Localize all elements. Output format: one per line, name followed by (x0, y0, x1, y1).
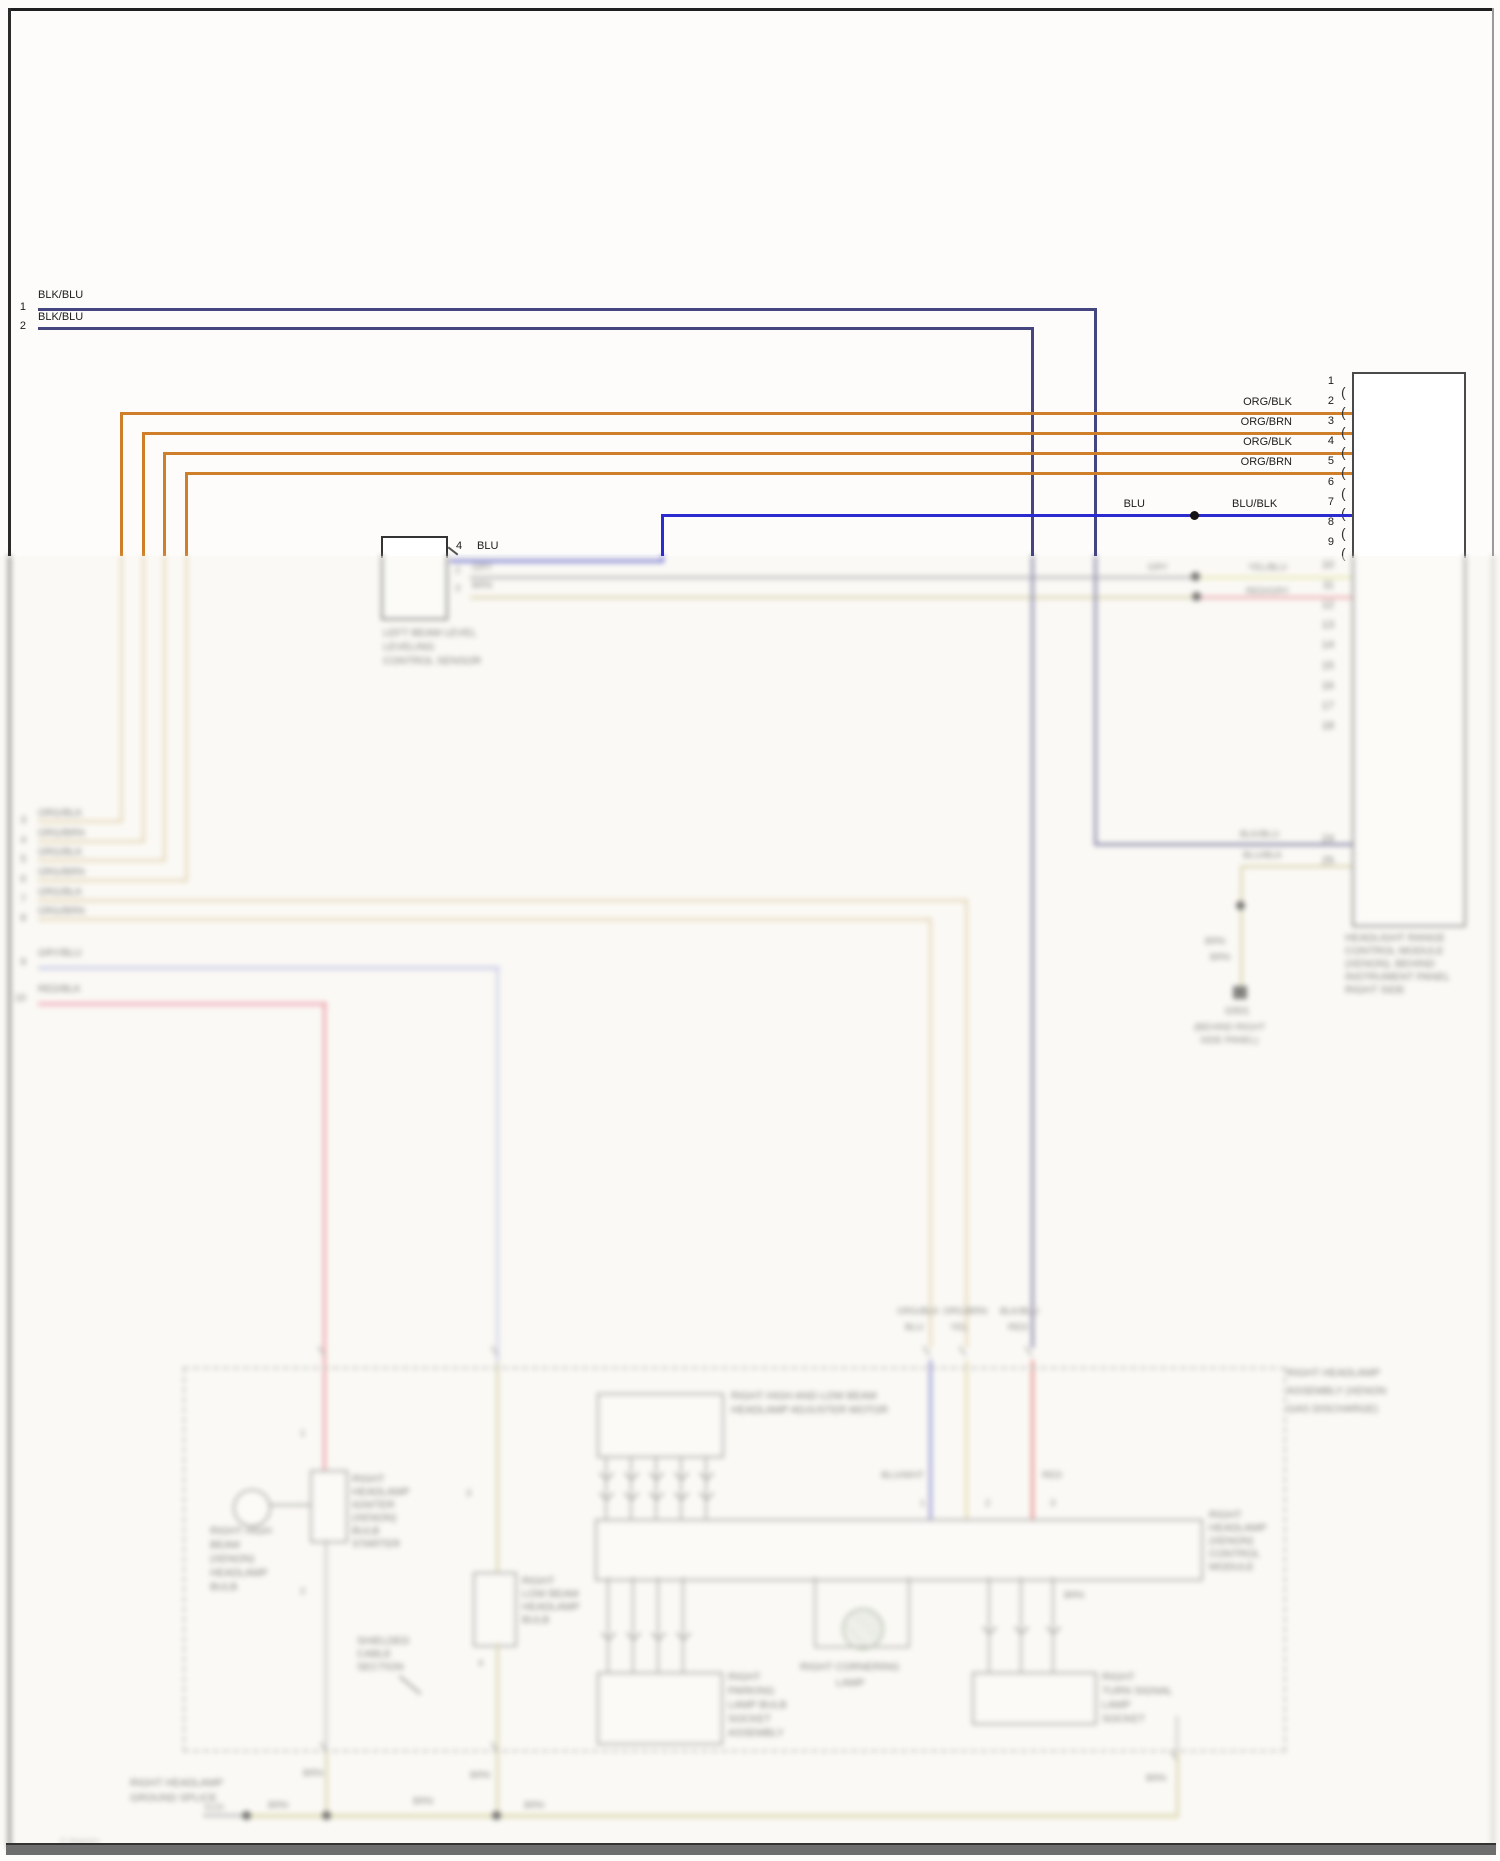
pin-10: 10 (1308, 559, 1334, 571)
wire-tan-8 (38, 918, 932, 921)
bulb2-caption-2: LOW BEAM (522, 1589, 579, 1601)
stub5-label: ORG/BLK (38, 847, 82, 858)
ctrl-caption-3: (XENON) (1209, 1536, 1253, 1548)
bus-dot-3 (492, 1811, 501, 1820)
wire-gnd-v (1240, 865, 1243, 990)
wire-blu-v-lower (661, 556, 664, 563)
note-caption-1: SHIELDED (357, 1636, 410, 1648)
bus-brn-2: BRN (470, 1770, 490, 1781)
connector-caption-2: CONTROL MODULE (1345, 946, 1444, 958)
bulb2-caption-4: BULB (522, 1615, 549, 1627)
igniter-gnd-wire-gray (325, 1539, 327, 1750)
igniter-pin-top: 1 (300, 1428, 305, 1439)
bus-drop-gray (1176, 1716, 1178, 1752)
bus-brn-6: BRN (1146, 1773, 1166, 1784)
pin-13: 13 (1308, 619, 1334, 631)
bulb-circle-icon (233, 1489, 271, 1527)
igniter-box (310, 1470, 348, 1543)
stub8-label: ORG/BRN (38, 906, 85, 917)
entry3-above: BLK/BLU (1000, 1306, 1039, 1317)
bus-brn-5: BRN (524, 1800, 544, 1811)
headlamp-caption-3: GAS DISCHARGE) (1287, 1404, 1378, 1416)
pin-16: 16 (1308, 680, 1334, 692)
lowleft-caption-5: ASSEMBLY (728, 1728, 784, 1740)
ctrl-caption-2: HEADLAMP (1209, 1523, 1267, 1535)
igniter-caption-2: HEADLAMP (352, 1487, 410, 1499)
headlamp-caption-1: RIGHT HEADLAMP (1287, 1368, 1380, 1380)
gnd-wire-label-2: BRN (1210, 952, 1230, 963)
ctrl-pin-a: 1 (920, 1498, 925, 1509)
bus-drop-olive (1176, 1752, 1179, 1818)
pin-17: 17 (1308, 700, 1334, 712)
wire-blkblu-2-v-lower (1031, 556, 1034, 1348)
wire-lav-h (38, 966, 500, 970)
gry-label-right: YEL/BLU (1248, 562, 1287, 573)
ctrl-caption-4: CONTROL (1209, 1549, 1260, 1561)
connector-caption-3: (XENON), BEHIND (1345, 959, 1435, 971)
entry3-below: RED (1008, 1322, 1028, 1333)
pin-18: 18 (1308, 720, 1334, 732)
corner-leg-left (814, 1577, 816, 1648)
pin-14: 14 (1308, 639, 1334, 651)
stub7-number: 7 (8, 894, 26, 905)
stub5-number: 5 (8, 854, 26, 865)
stub4-number: 4 (8, 835, 26, 846)
wire-gnd-h (1240, 865, 1352, 868)
ctrl-wire-label-a: BLU/WHT (862, 1470, 924, 1481)
corner-leg-right (908, 1577, 910, 1648)
bus-dot-2 (322, 1811, 331, 1820)
wire-tan-7 (38, 899, 968, 902)
stub3-label: ORG/BLK (38, 808, 82, 819)
lowright-caption-1: RIGHT (1102, 1672, 1135, 1684)
lowright-caption-3: LAMP (1102, 1700, 1131, 1712)
ground-bus (246, 1814, 1178, 1818)
splice-dot-gry (1191, 572, 1200, 581)
note-caption-2: CABLE (357, 1649, 391, 1661)
lowright-caption-2: TURN SIGNAL (1102, 1686, 1173, 1698)
bus-brn-1: BRN (303, 1768, 323, 1779)
igniter-caption-3: IGNITER (352, 1500, 395, 1512)
stub10-number: 10 (8, 993, 26, 1004)
wire-blkblu-1-entry (1094, 843, 1352, 846)
entry1-below: BLU (905, 1322, 923, 1333)
ctrl-wire-label-b: RED (1042, 1470, 1062, 1481)
igniter-gnd-wire-olive (325, 1750, 328, 1816)
lowleft-caption-3: LAMP BULB (728, 1700, 787, 1712)
bulb2-caption-1: RIGHT (522, 1576, 555, 1588)
bulb2-pin-top: 3 (466, 1488, 471, 1499)
stub9-number: 9 (8, 957, 26, 968)
w1-label-below: BLU/BLK (1243, 850, 1282, 861)
wire-blkblu-1-v-lower (1094, 556, 1097, 845)
level-sensor-caption-2: LEVELING (383, 642, 434, 654)
w1-label-above: BLK/BLU (1240, 829, 1279, 840)
ground-loc-1: (BEHIND RIGHT (1194, 1022, 1265, 1033)
igniter-pin-bot: 2 (300, 1586, 305, 1597)
igniter-caption-5: BULB (352, 1526, 379, 1538)
wire-tan-3 (38, 820, 123, 823)
control-module-box (595, 1519, 1203, 1581)
wiring-diagram-page: 1 BLK/BLU 2 BLK/BLU ORG/BLK ORG/BRN ORG/… (0, 0, 1500, 1861)
wire-tan-7-v (965, 899, 968, 1348)
gnd-wire-label-1: BRN (1205, 936, 1225, 947)
ground-symbol (1233, 986, 1247, 999)
wire-olv-h (470, 596, 1198, 599)
level-sensor-pin2-color: GRY (472, 562, 492, 573)
wire-tan-3-v (120, 556, 123, 822)
splice-dot-olv (1192, 592, 1201, 601)
lowleft-caption-2: PARKING (728, 1686, 774, 1698)
bulb-link-line (269, 1504, 310, 1506)
stub10-label: RED/BLK (38, 984, 81, 995)
entry1-above: ORG/BLK (897, 1306, 939, 1317)
connector-box-lower (1352, 556, 1466, 927)
ground-loc-2: SIDE PANEL) (1200, 1035, 1258, 1046)
igniter-caption-6: STARTER (352, 1539, 400, 1551)
corner-caption-2: LAMP (836, 1678, 865, 1690)
pin-15: 15 (1308, 660, 1334, 672)
bus-brn-3: BRN (268, 1800, 288, 1811)
wire-yel-h (1197, 576, 1352, 579)
corner-caption-1: RIGHT CORNERING (800, 1662, 900, 1674)
lowbeam-bulb-box (473, 1572, 517, 1647)
lowright-caption-4: SOCKET (1102, 1714, 1145, 1726)
bulb-caption-2: BEAM (210, 1540, 240, 1552)
wire-tan-6-v (185, 556, 188, 881)
page-border-left-lower (8, 556, 11, 1848)
level-sensor-pin3: 3 (455, 583, 460, 594)
pin-12: 12 (1308, 599, 1334, 611)
bulb-caption-4: HEADLAMP (210, 1568, 268, 1580)
igniter-caption-4: (XENON) (352, 1513, 396, 1525)
wire-tan-5-v (163, 556, 166, 861)
bus-brn-4: BRN (413, 1796, 433, 1807)
stub9-label: GRY/BLU (38, 948, 82, 959)
bulb2-caption-3: HEADLAMP (522, 1602, 580, 1614)
level-sensor-box-lower (381, 556, 448, 620)
page-border-right-lower (1492, 556, 1494, 1848)
stub8-number: 8 (8, 913, 26, 924)
pin-11: 11 (1308, 579, 1334, 591)
note-caption-3: SECTION (357, 1662, 404, 1674)
connector-caption-4: INSTRUMENT PANEL (1345, 972, 1450, 984)
bulb2-gnd-wire (496, 1643, 499, 1816)
stub7-label: ORG/BLK (38, 887, 82, 898)
cornering-lamp-icon (842, 1608, 884, 1650)
wire-pink-h (38, 1002, 327, 1006)
lowleft-caption-4: SOCKET (728, 1714, 771, 1726)
ground-code: G501 (1225, 1006, 1249, 1017)
wire-tan-4-v (142, 556, 145, 842)
gry-label-left: GRY (1108, 562, 1168, 573)
adjuster-caption-1: RIGHT HIGH AND LOW BEAM (731, 1391, 877, 1403)
connector-caption-5: RIGHT SIDE (1345, 985, 1405, 997)
connector-caption-1: HEADLIGHT RANGE (1345, 933, 1445, 945)
level-sensor-caption-1: LEFT BEAM LEVEL (383, 628, 477, 640)
bulb-caption-1: RIGHT HIGH (210, 1526, 272, 1538)
wire-tan-4 (38, 840, 145, 843)
stub3-number: 3 (8, 815, 26, 826)
red-label-right: RED/GRY (1246, 586, 1289, 597)
lowleft-caption-1: RIGHT (728, 1672, 761, 1684)
igniter-caption-1: RIGHT (352, 1474, 385, 1486)
splice-code: S120 (204, 1802, 224, 1812)
ctrl-caption-5: MODULE (1209, 1562, 1254, 1574)
bus-dot-1 (242, 1811, 251, 1820)
parking-lamp-box (597, 1672, 723, 1745)
ctrl-pin-b: 2 (985, 1498, 990, 1509)
ground-left-caption-1: RIGHT HEADLAMP (130, 1778, 223, 1790)
wire-tan-6 (38, 879, 188, 882)
headlamp-caption-2: ASSEMBLY (XENON (1287, 1386, 1386, 1398)
page-border-bottom-band (6, 1845, 1496, 1855)
bulb-caption-3: (XENON) (210, 1554, 254, 1566)
adjuster-motor-box (597, 1393, 724, 1458)
stub6-number: 6 (8, 874, 26, 885)
ctrl-caption-1: RIGHT (1209, 1510, 1242, 1522)
blurred-lower-region: 10 11 12 13 14 15 16 17 18 24 25 HEADLIG… (0, 0, 1500, 1861)
level-sensor-caption-3: CONTROL SENSOR (383, 656, 481, 668)
entry2-above: ORG/BRN (943, 1306, 987, 1317)
wire-tan-5 (38, 859, 166, 862)
splice-dot-gnd (1236, 901, 1245, 910)
entry2-below: YEL (950, 1322, 968, 1333)
stub6-label: ORG/BRN (38, 867, 85, 878)
wire-lav-v (496, 966, 499, 1362)
level-sensor-pin2: 2 (455, 565, 460, 576)
wire-gry-h (470, 576, 1197, 579)
turn-signal-box (972, 1672, 1097, 1725)
level-sensor-pin3-color: BRN (472, 580, 492, 591)
ctrl-pin-c: 3 (1050, 1498, 1055, 1509)
lr-wire-label: BRN (1064, 1590, 1084, 1601)
adjuster-caption-2: HEADLAMP ADJUSTER MOTOR (731, 1405, 888, 1417)
wire-tan-8-v (929, 918, 932, 1348)
bulb2-pin-bot: 4 (478, 1658, 483, 1669)
bulb-caption-5: BULB (210, 1582, 237, 1594)
stub4-label: ORG/BRN (38, 828, 85, 839)
